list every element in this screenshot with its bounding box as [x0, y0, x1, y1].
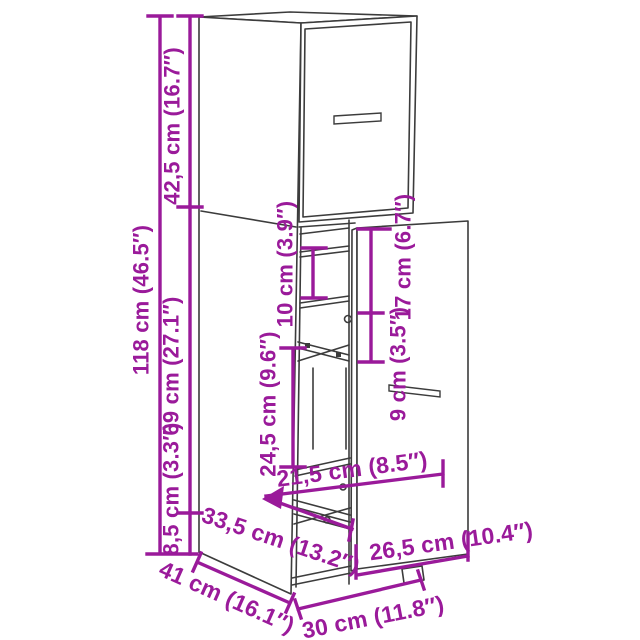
- cabinet-diagram-svg: 118 cm (46.5″) 42,5 cm (16.7″) 69 cm (27…: [0, 0, 640, 640]
- dim-label-lower-section-height: 69 cm (27.1″): [159, 296, 184, 435]
- lower-interior: [292, 220, 355, 587]
- dim-label-handle-section: 9 cm (3.5″): [386, 307, 411, 421]
- dim-label-plinth-height: 8,5 cm (3.3″): [159, 423, 184, 556]
- dim-label-upper-door-height: 42,5 cm (16.7″): [160, 47, 185, 205]
- dim-cabinet-width: 30 cm (11.8″): [295, 571, 446, 640]
- dim-label-total-height: 118 cm (46.5″): [129, 225, 154, 375]
- product-dimension-diagram: 118 cm (46.5″) 42,5 cm (16.7″) 69 cm (27…: [0, 0, 640, 640]
- dim-label-compartment-height: 24,5 cm (9.6″): [256, 331, 281, 476]
- dim-label-drawer-top-to-handle: 17 cm (6.7″): [391, 194, 416, 321]
- cabinet-drawing: [199, 12, 468, 594]
- dim-upper-door-height: 42,5 cm (16.7″): [160, 16, 203, 207]
- dim-label-shelf-gap: 10 cm (3.9″): [273, 201, 298, 328]
- peg-hole: [345, 316, 352, 323]
- dim-plinth-height: 8,5 cm (3.3″): [159, 423, 191, 556]
- dim-label-cabinet-width: 30 cm (11.8″): [300, 590, 446, 640]
